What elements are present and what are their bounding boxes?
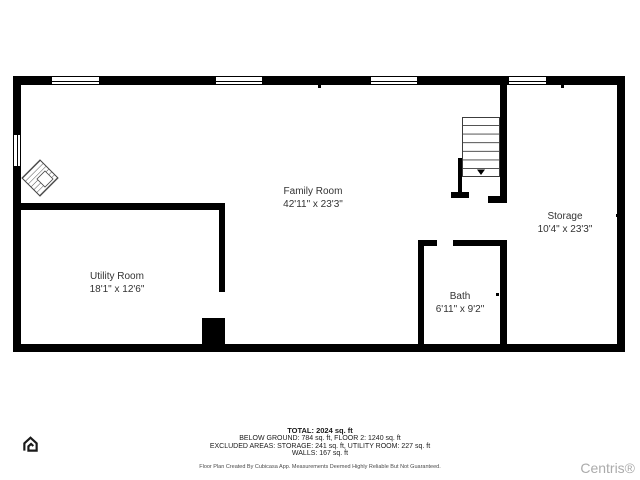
window-icon: [370, 76, 418, 85]
area-breakdown-text: BELOW GROUND: 784 sq. ft, FLOOR 2: 1240 …: [0, 435, 640, 443]
wall-bath-left: [418, 240, 424, 344]
room-name: Storage: [538, 210, 593, 223]
wall-tick: [420, 293, 423, 296]
wall-utility-top: [21, 203, 225, 210]
room-dimensions: 42'11" x 23'3": [283, 198, 343, 211]
wall-divider-foot: [488, 196, 507, 203]
wall-tick: [460, 243, 463, 246]
stair-rail-foot: [451, 192, 469, 198]
cubicasa-house-icon: [22, 436, 39, 453]
window-icon: [51, 76, 100, 85]
wall-tick: [501, 101, 504, 104]
window-icon: [215, 76, 263, 85]
wall-tick: [17, 102, 20, 105]
wall-tick: [17, 262, 20, 265]
room-name: Utility Room: [90, 270, 145, 283]
area-summary: TOTAL: 2024 sq. ft BELOW GROUND: 784 sq.…: [0, 426, 640, 470]
wall-divider-lower: [500, 240, 507, 344]
room-label-storage: Storage 10'4" x 23'3": [538, 210, 593, 236]
wall-tick: [459, 344, 462, 347]
centris-watermark: Centris®: [580, 460, 635, 476]
floor-plan-page: Family Room 42'11" x 23'3" Utility Room …: [0, 0, 640, 480]
room-label-bath: Bath 6'11" x 9'2": [436, 290, 485, 316]
wall-tick: [616, 214, 619, 217]
total-area-text: TOTAL: 2024 sq. ft: [0, 426, 640, 435]
wall-left: [13, 76, 21, 352]
room-dimensions: 10'4" x 23'3": [538, 223, 593, 236]
walls-area-text: WALLS: 167 sq. ft: [0, 450, 640, 458]
window-icon: [508, 76, 547, 85]
wall-utility-right: [219, 203, 225, 292]
excluded-areas-text: EXCLUDED AREAS: STORAGE: 241 sq. ft, UTI…: [0, 443, 640, 451]
room-label-utility-room: Utility Room 18'1" x 12'6": [90, 270, 145, 296]
wall-tick: [561, 344, 564, 347]
room-name: Family Room: [283, 185, 343, 198]
wall-tick: [561, 85, 564, 88]
wall-tick: [110, 204, 113, 207]
wall-tick: [110, 344, 113, 347]
fireplace-icon: [20, 158, 60, 198]
staircase-down-icon: [462, 117, 500, 177]
room-name: Bath: [436, 290, 485, 303]
chimney-block: [202, 318, 225, 345]
room-dimensions: 18'1" x 12'6": [90, 283, 145, 296]
wall-tick: [318, 85, 321, 88]
room-dimensions: 6'11" x 9'2": [436, 303, 485, 316]
wall-tick: [229, 344, 232, 347]
wall-tick: [204, 344, 207, 347]
room-label-family-room: Family Room 42'11" x 23'3": [283, 185, 343, 211]
wall-tick: [496, 293, 499, 296]
wall-tick: [318, 344, 321, 347]
disclaimer-text: Floor Plan Created By Cubicasa App. Meas…: [0, 464, 640, 470]
